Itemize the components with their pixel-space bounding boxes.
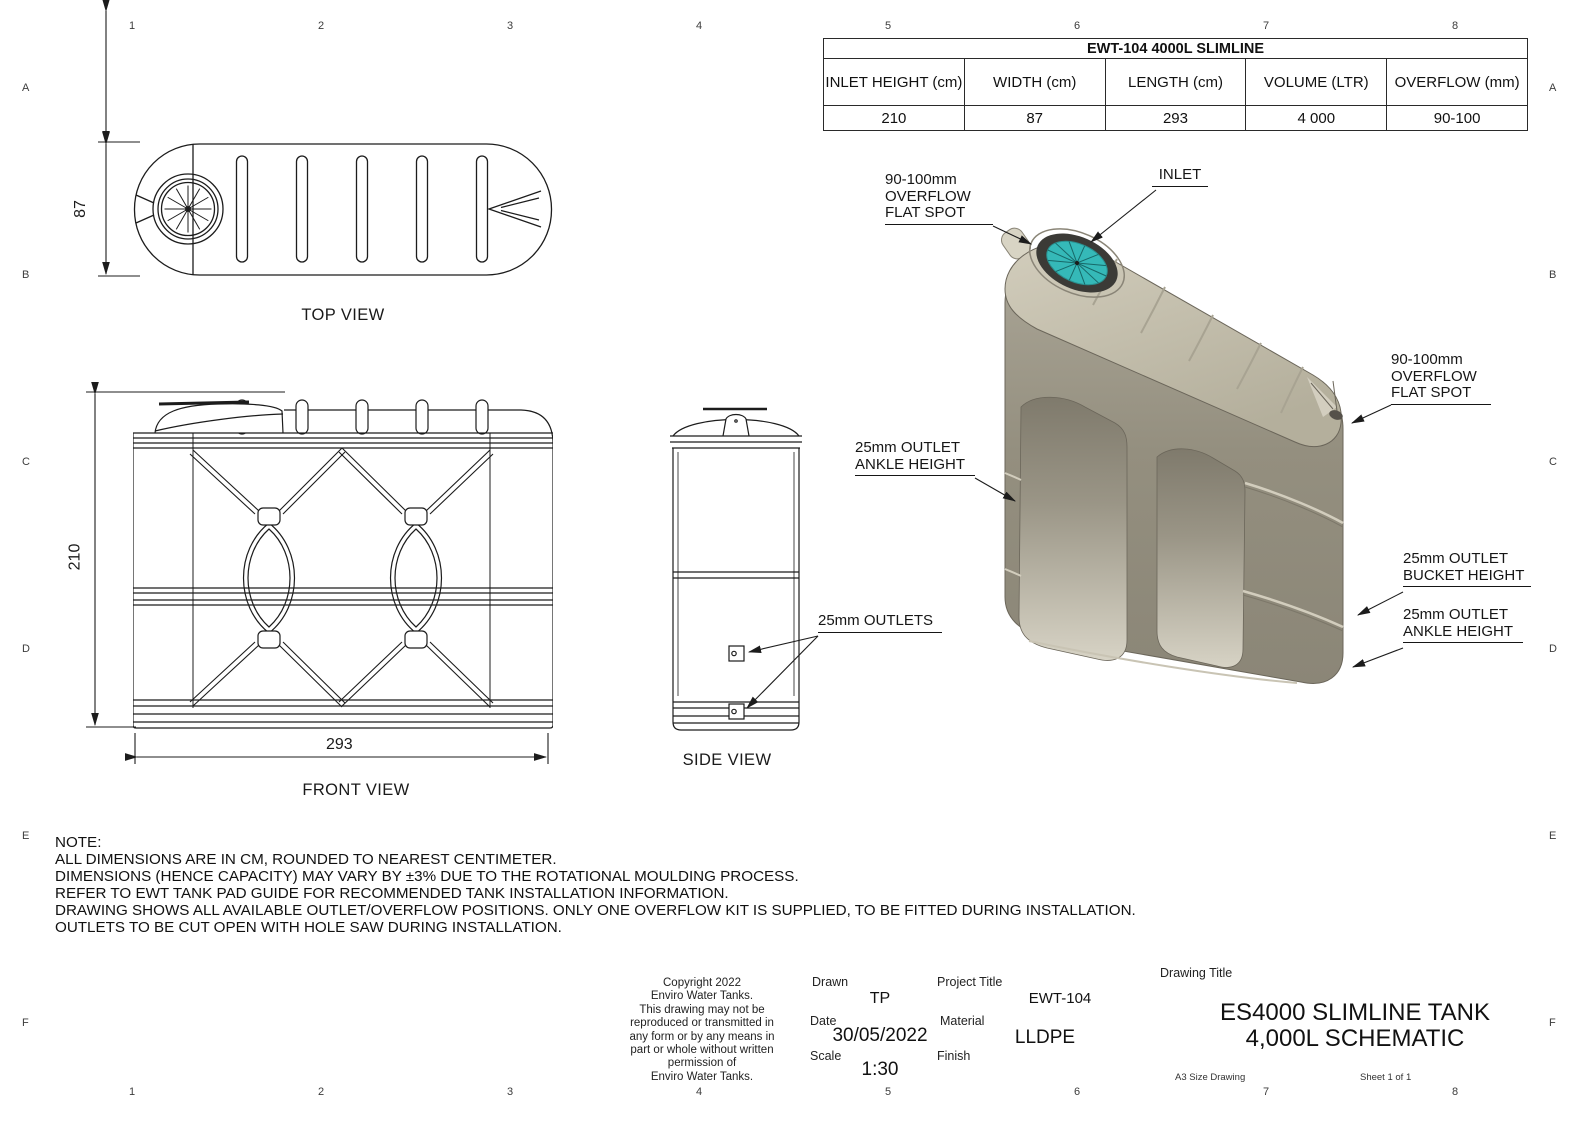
spec-col-header: INLET HEIGHT (cm) [824,59,965,106]
note-line: DIMENSIONS (HENCE CAPACITY) MAY VARY BY … [55,868,1136,885]
callout-outlet-bucket-right: 25mm OUTLETBUCKET HEIGHT [1403,551,1531,587]
callout-overflow-left: 90-100mmOVERFLOWFLAT SPOT [885,172,993,225]
grid-col-4-bottom: 4 [696,1086,702,1098]
note-line: OUTLETS TO BE CUT OPEN WITH HOLE SAW DUR… [55,919,1136,936]
grid-col-7-top: 7 [1263,20,1269,32]
drawing-title-label: Drawing Title [1160,966,1232,980]
callout-overflow-right: 90-100mmOVERFLOWFLAT SPOT [1391,352,1491,405]
material-value: LLDPE [990,1027,1100,1049]
side-view-drawing [665,396,807,768]
sheet-size-note: A3 Size Drawing [1175,1072,1245,1083]
grid-col-3-bottom: 3 [507,1086,513,1098]
copyright-line: Enviro Water Tanks. [602,1071,802,1084]
spec-value: 87 [964,106,1105,131]
grid-col-6-top: 6 [1074,20,1080,32]
note-line: DRAWING SHOWS ALL AVAILABLE OUTLET/OVERF… [55,902,1136,919]
callout-line: 25mm OUTLET [1403,551,1531,568]
callout-line: FLAT SPOT [885,205,993,222]
date-value: 30/05/2022 [818,1025,942,1047]
callout-line: INLET [1152,167,1208,184]
spec-value: 90-100 [1387,106,1528,131]
spec-table-title: EWT-104 4000L SLIMLINE [824,39,1528,59]
spec-col-header: OVERFLOW (mm) [1387,59,1528,106]
front-view-label: FRONT VIEW [276,781,436,800]
sheet-number: Sheet 1 of 1 [1360,1072,1411,1083]
callout-line: BUCKET HEIGHT [1403,568,1531,585]
spec-value: 293 [1105,106,1246,131]
callout-line: ANKLE HEIGHT [855,457,975,474]
material-label: Material [940,1014,984,1028]
copyright-line: Copyright 2022 [602,977,802,990]
grid-row-C-left: C [22,456,30,468]
spec-table: EWT-104 4000L SLIMLINEINLET HEIGHT (cm)W… [823,38,1528,131]
callout-line: 25mm OUTLET [1403,607,1523,624]
grid-row-E-left: E [22,830,29,842]
callout-outlet-ankle-left: 25mm OUTLETANKLE HEIGHT [855,440,975,476]
grid-col-1-bottom: 1 [129,1086,135,1098]
spec-col-header: LENGTH (cm) [1105,59,1246,106]
grid-row-B-left: B [22,269,29,281]
grid-row-D-left: D [22,643,30,655]
grid-row-A-left: A [22,82,29,94]
scale-value: 1:30 [840,1059,920,1081]
grid-col-2-bottom: 2 [318,1086,324,1098]
grid-row-E-right: E [1549,830,1556,842]
drawing-title-line1: ES4000 SLIMLINE TANK [1200,1000,1510,1026]
callout-line: ANKLE HEIGHT [1403,624,1523,641]
spec-value: 210 [824,106,965,131]
project-title-value: EWT-104 [1000,990,1120,1007]
spec-col-header: VOLUME (LTR) [1246,59,1387,106]
finish-label: Finish [937,1049,970,1063]
callout-line: 90-100mm [1391,352,1491,369]
copyright-line: part or whole without written [602,1044,802,1057]
notes-lines: ALL DIMENSIONS ARE IN CM, ROUNDED TO NEA… [55,851,1136,936]
isometric-view-drawing [985,225,1370,700]
callout-inlet: INLET [1152,167,1208,187]
note-line: ALL DIMENSIONS ARE IN CM, ROUNDED TO NEA… [55,851,1136,868]
drawing-title-line2: 4,000L SCHEMATIC [1200,1026,1510,1052]
notes-title: NOTE: [55,834,1136,851]
spec-value: 4 000 [1246,106,1387,131]
top-view-drawing [133,141,553,278]
grid-row-B-right: B [1549,269,1556,281]
callout-line: FLAT SPOT [1391,385,1491,402]
callout-line: 25mm OUTLET [855,440,975,457]
drawing-title: ES4000 SLIMLINE TANK 4,000L SCHEMATIC [1200,1000,1510,1052]
grid-col-6-bottom: 6 [1074,1086,1080,1098]
recess-left [1019,397,1127,660]
note-line: REFER TO EWT TANK PAD GUIDE FOR RECOMMEN… [55,885,1136,902]
copyright-line: reproduced or transmitted in [602,1017,802,1030]
dim-height-210: 210 [66,544,84,571]
scale-label: Scale [810,1049,841,1063]
callout-outlets-side: 25mm OUTLETS [818,613,942,633]
grid-col-7-bottom: 7 [1263,1086,1269,1098]
grid-row-F-right: F [1549,1017,1556,1029]
callout-line: 90-100mm [885,172,993,189]
grid-col-2-top: 2 [318,20,324,32]
grid-row-D-right: D [1549,643,1557,655]
side-view-label: SIDE VIEW [667,751,787,770]
grid-col-1-top: 1 [129,20,135,32]
drawn-value: TP [840,990,920,1008]
rib-diagonals [190,448,493,707]
dim-length-293: 293 [326,736,353,754]
inlet-spokes-top-view [165,186,212,233]
copyright-line: any form or by any means in [602,1031,802,1044]
grid-col-5-bottom: 5 [885,1086,891,1098]
callout-line: OVERFLOW [885,189,993,206]
notes-block: NOTE: ALL DIMENSIONS ARE IN CM, ROUNDED … [55,834,1136,937]
copyright-line: permission of [602,1057,802,1070]
grid-row-F-left: F [22,1017,29,1029]
callout-line: 25mm OUTLETS [818,613,942,630]
recess-right [1157,449,1245,668]
drawing-sheet: 1122334455667788AABBCCDDEEFF EWT-104 400… [0,0,1587,1123]
dim-width-87: 87 [72,200,90,218]
front-view-drawing [133,398,553,764]
copyright-block: Copyright 2022Enviro Water Tanks.This dr… [602,977,802,1084]
grid-col-8-top: 8 [1452,20,1458,32]
grid-row-A-right: A [1549,82,1556,94]
grid-row-C-right: C [1549,456,1557,468]
grid-col-3-top: 3 [507,20,513,32]
project-title-label: Project Title [937,975,1002,989]
callout-outlet-ankle-right: 25mm OUTLETANKLE HEIGHT [1403,607,1523,643]
spec-col-header: WIDTH (cm) [964,59,1105,106]
drawn-label: Drawn [812,975,848,989]
grid-col-5-top: 5 [885,20,891,32]
grid-col-4-top: 4 [696,20,702,32]
callout-line: OVERFLOW [1391,369,1491,386]
copyright-line: Enviro Water Tanks. [602,990,802,1003]
grid-col-8-bottom: 8 [1452,1086,1458,1098]
top-view-label: TOP VIEW [283,306,403,325]
copyright-line: This drawing may not be [602,1004,802,1017]
